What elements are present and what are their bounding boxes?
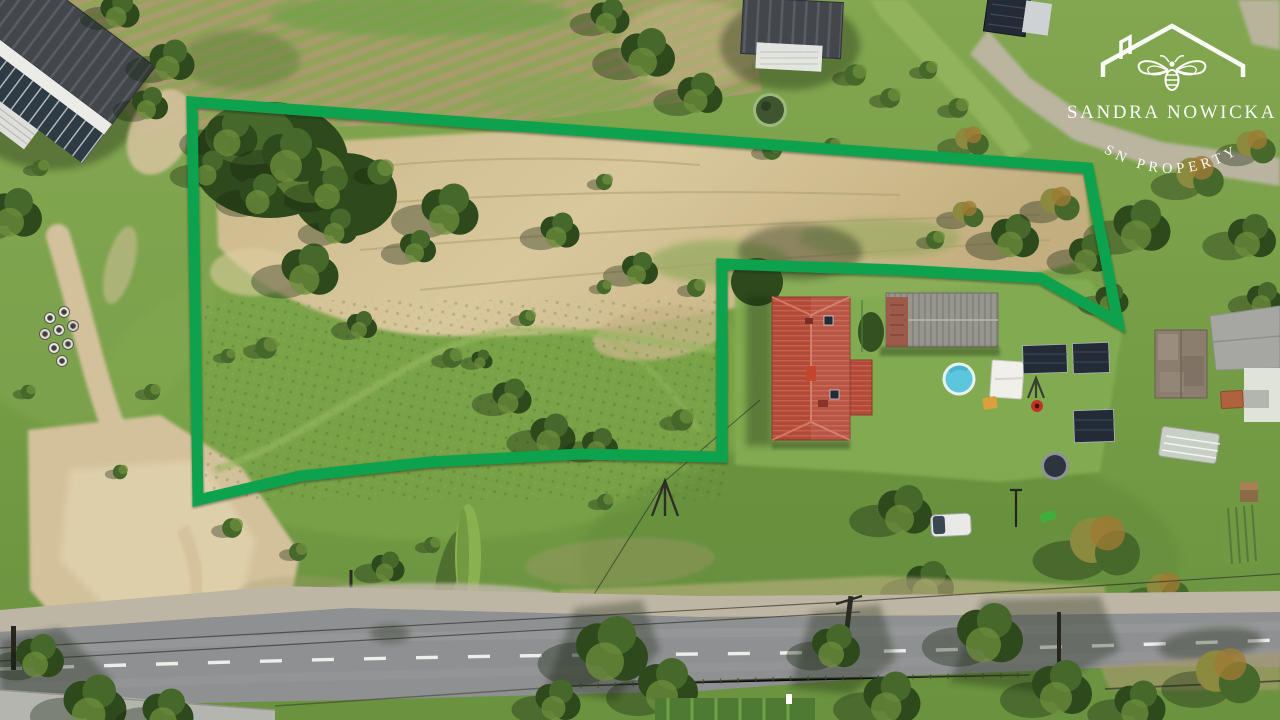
white-gate-post xyxy=(786,694,792,704)
skylight xyxy=(830,390,839,399)
aerial-photo-stage: SANDRA NOWICKA SN PROPERTY xyxy=(0,0,1280,720)
round-pool xyxy=(943,363,976,396)
weathered-roof-cottage xyxy=(1155,330,1207,398)
garden-grass-strip xyxy=(480,75,640,115)
gravel-pulloff xyxy=(295,583,565,613)
patio xyxy=(1243,390,1269,408)
windshield xyxy=(933,516,946,535)
orange-shed xyxy=(1221,390,1244,408)
house-solar-roof xyxy=(983,0,1052,37)
chimney xyxy=(818,400,828,407)
skylight xyxy=(824,316,833,325)
roof-extension xyxy=(850,360,872,415)
garden-pond xyxy=(753,93,787,127)
sandbox-toy xyxy=(982,396,998,410)
gray-barn xyxy=(880,293,1000,356)
white-car xyxy=(930,513,971,537)
trampoline xyxy=(1041,452,1069,480)
white-tent xyxy=(990,360,1025,399)
garden-shade xyxy=(180,30,300,90)
brand-name-text: SANDRA NOWICKA xyxy=(1067,102,1277,123)
ridge-vent xyxy=(806,366,816,381)
chimney xyxy=(805,318,813,324)
aerial-photo: SANDRA NOWICKA SN PROPERTY xyxy=(0,0,1280,720)
scrub-texture xyxy=(205,300,725,500)
house-shadow xyxy=(746,296,772,446)
